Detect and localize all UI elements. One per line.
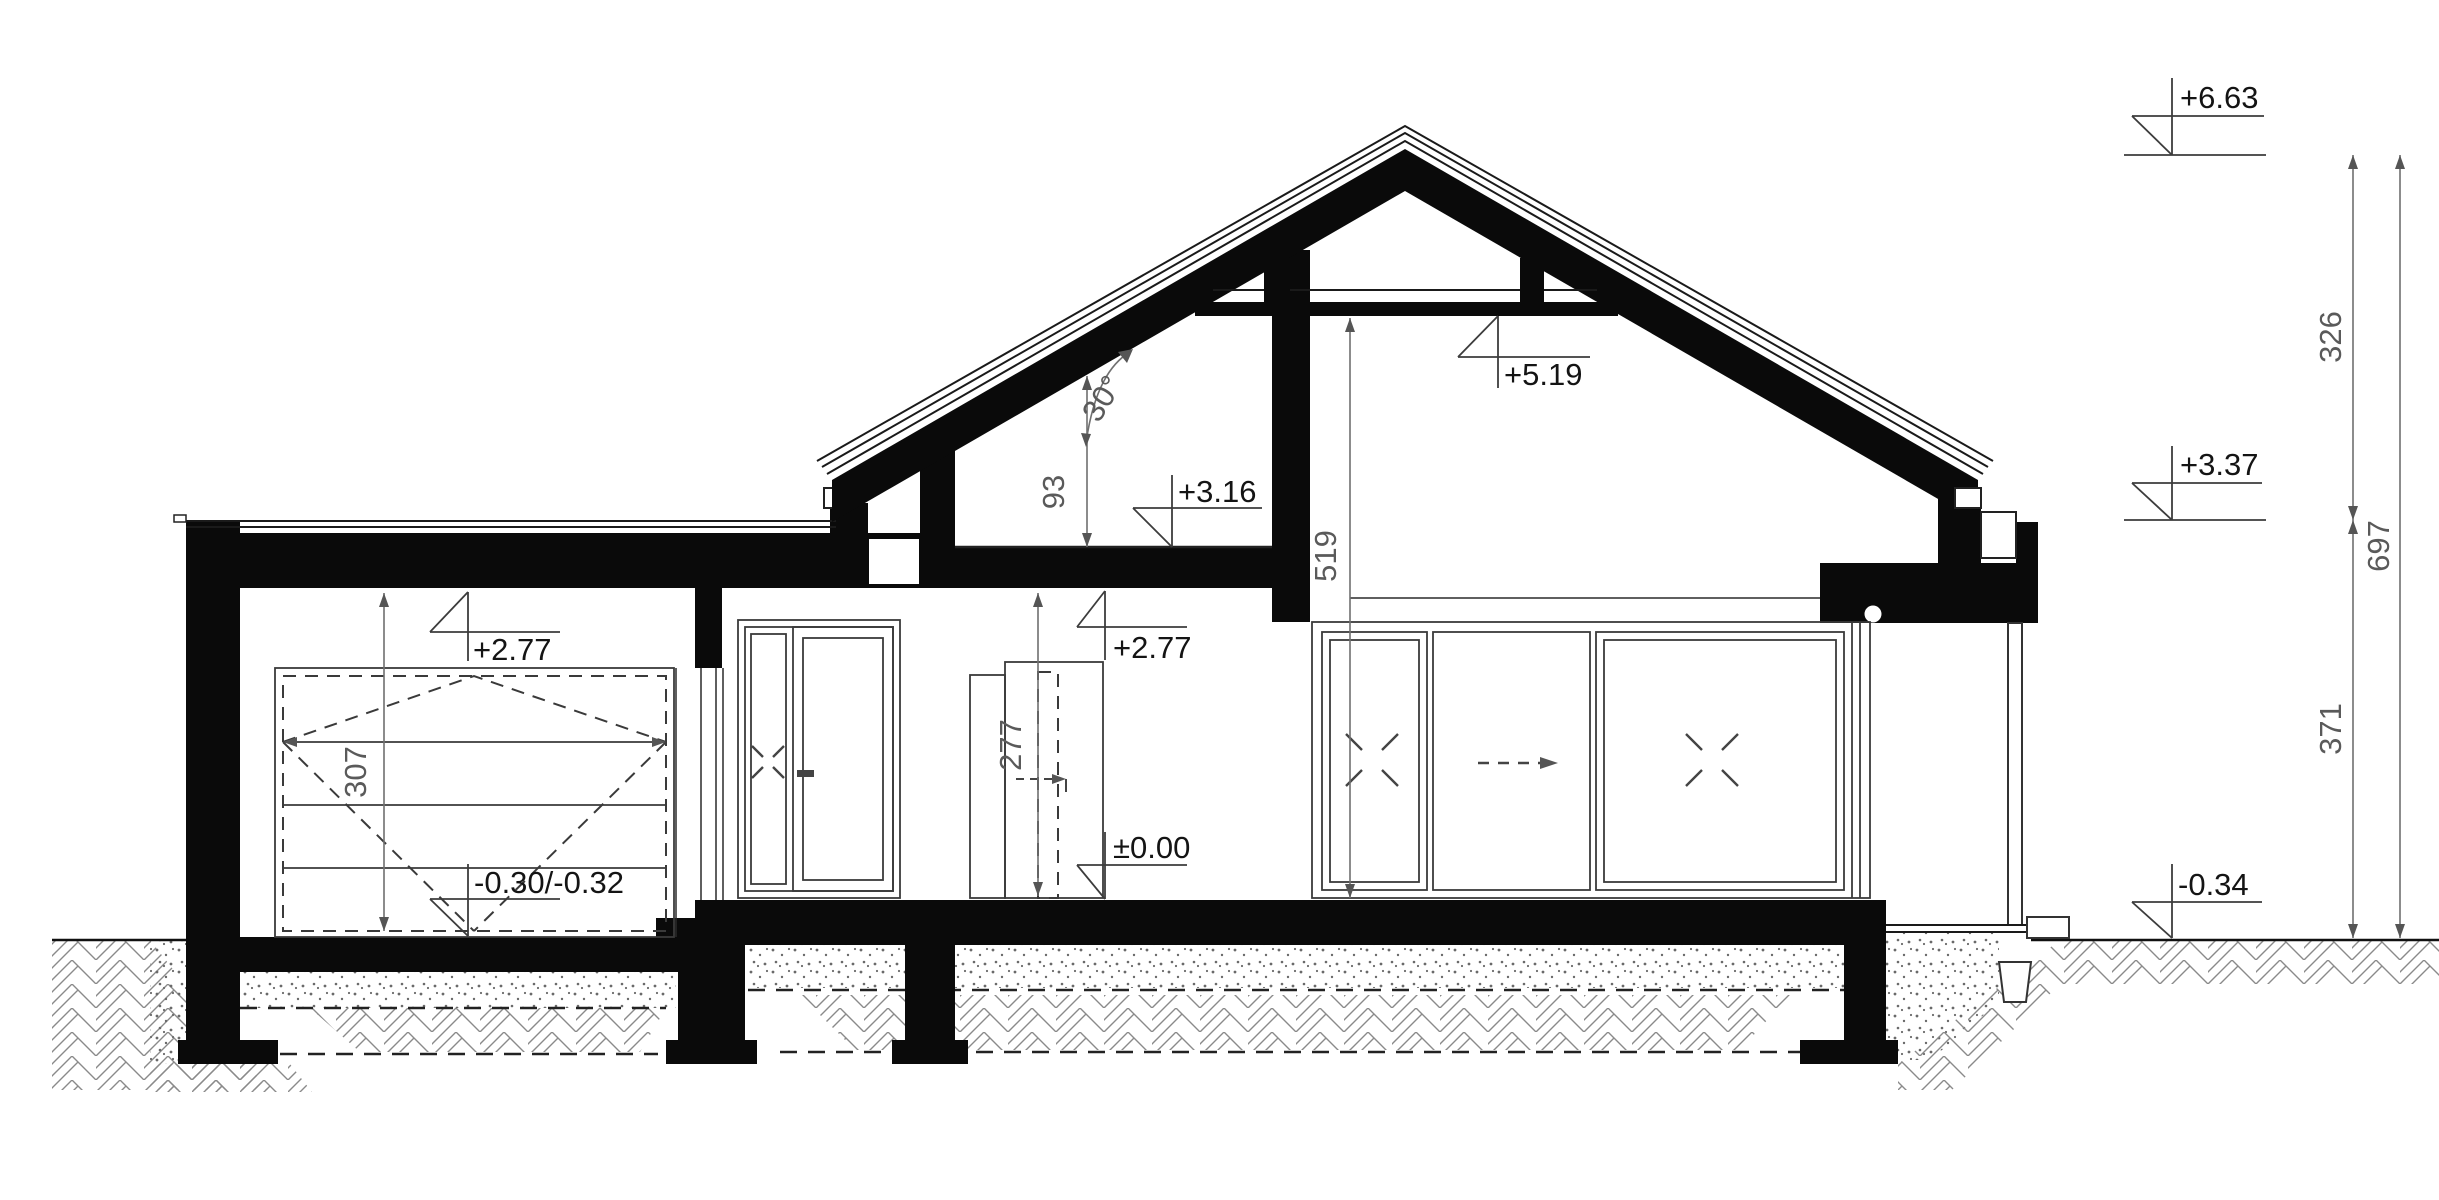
dim-hall-height: 277	[993, 719, 1028, 771]
dim-ridge-eave: 326	[2313, 311, 2348, 363]
svg-text:-0.34: -0.34	[2178, 867, 2249, 902]
eaves-void	[869, 539, 919, 584]
roof-slope-right	[1405, 149, 1978, 522]
level-marker-ridge: +6.63	[2124, 78, 2266, 155]
svg-text:-0.30/-0.32: -0.30/-0.32	[474, 865, 624, 900]
svg-text:+6.63: +6.63	[2180, 80, 2258, 115]
splash-pad	[1999, 962, 2031, 1002]
eave-beam-right	[1820, 563, 2038, 623]
house-section-drawing: 326 371 697 519 277 307 93 30°	[0, 0, 2439, 1200]
subbase-house	[748, 945, 905, 988]
svg-text:+2.77: +2.77	[1113, 630, 1191, 665]
soil-hatch-right	[2060, 940, 2439, 984]
footing-middle	[666, 1040, 757, 1064]
level-marker-eave: +3.37	[2124, 446, 2266, 520]
purlin-left	[1264, 258, 1290, 302]
level-marker-garage-floor: -0.30/-0.32	[430, 864, 624, 936]
level-marker-hall-ceiling: +2.77	[1077, 591, 1191, 665]
svg-text:+2.77: +2.77	[473, 632, 551, 667]
svg-text:+5.19: +5.19	[1504, 357, 1582, 392]
level-marker-terrain: -0.34	[2132, 864, 2262, 938]
floor-slab-house	[695, 900, 1886, 945]
fixed-glazing-mark	[752, 746, 784, 778]
pier-garage-hall	[695, 587, 722, 668]
dim-garage-height: 307	[338, 746, 373, 798]
interior-door-leaf-dashed	[1038, 672, 1058, 898]
level-marker-floor-zero: ±0.00	[1077, 830, 1190, 899]
svg-text:+3.16: +3.16	[1178, 474, 1256, 509]
kerb-block	[2027, 917, 2069, 938]
entrance-door-leaf	[793, 627, 893, 891]
entrance-door-frame	[738, 620, 900, 898]
architectural-drawing-page: { "drawing": { "type": "house-cross-sect…	[0, 0, 2439, 1200]
pane-fixed-right	[1596, 632, 1844, 890]
window-frame	[1312, 622, 1870, 898]
collar-ceiling	[1195, 302, 1618, 316]
dim-living-height: 519	[1308, 530, 1343, 582]
entrance	[695, 587, 1103, 900]
footing-left	[178, 1040, 278, 1064]
dim-knee-height: 93	[1036, 475, 1071, 509]
floor-slab-garage	[240, 937, 695, 972]
footing-right	[1800, 1040, 1898, 1064]
subbase-garage	[240, 972, 676, 1008]
sliding-glass-wall	[1312, 622, 1870, 898]
dim-ridge-terrain: 697	[2361, 520, 2396, 572]
fixed-glazing-mark	[1686, 734, 1738, 786]
door-swing-dashed	[283, 676, 666, 742]
pane-sliding	[1433, 632, 1590, 890]
gutter-right	[1981, 512, 2016, 558]
wall-left-exterior	[186, 522, 240, 943]
pane-fixed-left	[1322, 632, 1427, 890]
sidelight	[751, 634, 786, 884]
level-marker-collar: +5.19	[1458, 316, 1590, 392]
interior-door-panel	[970, 675, 1005, 898]
purlin-right	[1520, 258, 1544, 302]
svg-text:+3.37: +3.37	[2180, 447, 2258, 482]
beam-anchor-symbol	[1865, 606, 1882, 623]
door-handle	[797, 770, 814, 777]
svg-text:±0.00: ±0.00	[1113, 830, 1190, 865]
downpipe	[2008, 623, 2022, 925]
footing-interior	[892, 1040, 968, 1064]
fixed-glazing-mark	[1346, 734, 1398, 786]
dim-eave-terrain: 371	[2313, 703, 2348, 755]
level-marker-garage-ceiling: +2.77	[430, 592, 560, 667]
